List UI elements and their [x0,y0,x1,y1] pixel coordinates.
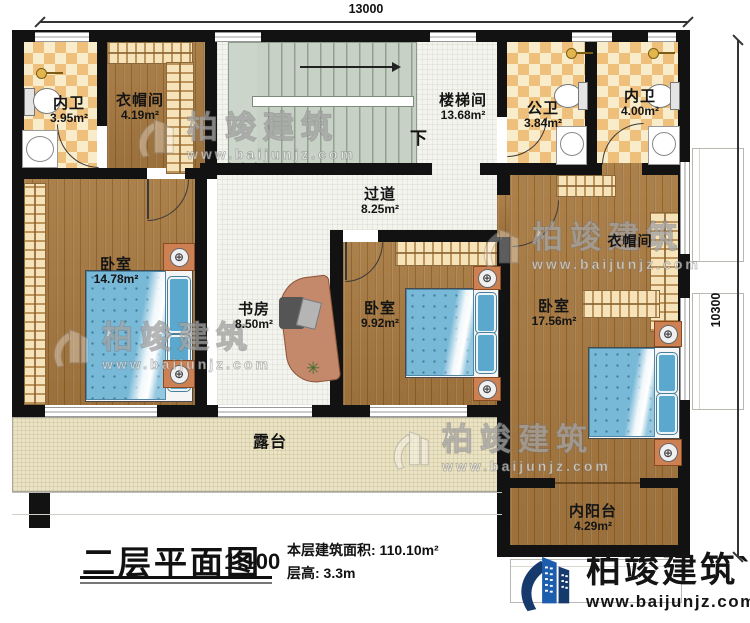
wall-segment [12,168,147,179]
room-label-stairwell: 楼梯间 13.68m² [417,92,509,123]
wall-segment [12,405,45,417]
window [680,298,690,400]
room-label-cloak-left: 衣帽间 4.19m² [100,92,180,123]
room-name: 楼梯间 [439,92,487,109]
room-name: 露台 [253,434,287,452]
room-area: 4.29m² [574,520,612,534]
bed-pillow [657,353,677,393]
room-area: 4.00m² [621,105,659,119]
logo-brand-name: 柏竣建筑` [586,553,750,588]
bed-pillow [168,277,190,333]
sink-icon [560,132,584,156]
nightstand-knob-icon: ⊕ [478,380,497,399]
closet-strip [556,175,616,197]
room-label-balcony: 内阳台 4.29m² [554,503,632,534]
window [35,32,89,42]
window [648,32,676,42]
room-name: 衣帽间 [116,92,164,109]
stair-direction-arrow [392,62,401,72]
wall-segment [312,405,370,417]
shower-valve-icon [566,48,577,59]
dimension-width-label: 13000 [330,2,402,16]
plan-scale: 1:100 [224,549,280,575]
wall-segment [510,478,555,488]
room-label-bedroom-right: 卧室 17.56m² [513,298,595,329]
room-name: 内阳台 [569,503,617,520]
sink-icon [652,132,676,156]
nightstand: ⊕ [654,439,682,466]
closet-strip [107,42,193,64]
stairs-down-label: 下 [410,124,427,149]
room-area: 9.92m² [361,317,399,331]
room-name: 内卫 [53,95,85,112]
nightstand: ⊕ [473,377,501,401]
wall-segment [200,163,432,175]
stair-direction-line [300,66,392,68]
window [680,162,690,254]
window [215,32,261,42]
plant-icon: ✳ [306,360,324,378]
dimension-line [737,40,739,557]
room-label-bath-public: 公卫 3.84m² [504,100,582,131]
bed-mattress [589,348,655,437]
room-label-bedroom-left: 卧室 14.78m² [76,256,156,287]
stair-handrail [252,96,414,107]
room-label-bath-master-right: 内卫 4.00m² [602,88,678,119]
dimension-line [40,21,688,23]
nightstand: ⊕ [654,321,682,347]
balcony-threshold [555,482,640,484]
nightstand: ⊕ [163,360,195,388]
window [430,32,476,42]
sink-icon [26,136,54,162]
logo-accent-mark: ` [738,551,750,590]
wardrobe-strip [24,183,46,405]
wall-segment [640,478,678,488]
shower-valve-icon [36,68,47,79]
dimension-height-label: 10300 [709,280,723,340]
logo-text: 柏竣建筑` www.baijunjz.com [586,553,750,612]
window [370,407,467,417]
wall-segment [12,30,24,417]
room-name: 卧室 [538,298,570,315]
shower-valve-icon [648,48,659,59]
brand-logo: 柏竣建筑` www.baijunjz.com [514,550,750,614]
nightstand: ⊕ [473,266,501,290]
logo-brand-chars: 柏竣建筑 [586,551,738,590]
bed-mattress [86,271,166,400]
room-name: 公卫 [527,100,559,117]
floor-area-text: 本层建筑面积: 110.10m² [287,540,439,560]
nightstand-knob-icon: ⊕ [659,325,678,344]
logo-website: www.baijunjz.com [586,592,750,612]
bed-pillow [657,394,677,434]
room-label-terrace: 露台 [230,434,310,452]
nightstand-knob-icon: ⊕ [170,248,189,267]
nightstand-knob-icon: ⊕ [478,269,497,288]
room-name: 过道 [364,186,396,203]
room-area: 17.56m² [532,315,577,329]
window [572,32,612,42]
room-area: 3.84m² [524,117,562,131]
room-area: 3.95m² [50,112,88,126]
sliding-door [218,407,312,417]
wall-segment [205,30,217,177]
eave-line [12,514,502,515]
room-name: 卧室 [100,256,132,273]
nightstand: ⊕ [163,243,195,271]
doorway-patch [497,195,510,237]
shower-valve-stem [45,72,63,74]
nightstand-knob-icon: ⊕ [170,365,189,384]
room-label-bedroom-mid: 卧室 9.92m² [340,300,420,331]
shower-valve-stem [575,52,593,54]
room-label-corridor: 过道 8.25m² [342,186,418,217]
floor-height-text: 层高: 3.3m [287,563,355,583]
floorplan-canvas: ⊕ ⊕ ⊕ ⊕ ⊕ ⊕ ✳ 内卫 3.95m² 衣帽间 4.19m² 楼梯间 1… [0,0,750,623]
shower-valve-stem [657,52,675,54]
door-leaf [345,242,347,280]
room-area: 4.19m² [121,109,159,123]
room-area: 14.78m² [94,273,139,287]
nightstand-knob-icon: ⊕ [659,443,678,462]
room-label-study: 书房 8.50m² [214,301,294,332]
wall-segment [497,175,510,195]
title-underline [80,582,272,584]
closet-strip [395,240,499,266]
room-label-cloak-right: 衣帽间 [592,233,668,249]
room-area: 13.68m² [441,109,486,123]
wall-segment [378,230,497,242]
window [45,407,157,417]
bed [588,347,680,439]
room-label-bath-master-left: 内卫 3.95m² [32,95,106,126]
title-underline [80,576,272,579]
bed-pillow [476,333,496,373]
eave-line [12,492,502,493]
room-area: 8.25m² [361,203,399,217]
room-name: 内卫 [624,88,656,105]
room-name: 卧室 [364,300,396,317]
bed-pillow [476,293,496,333]
chimney-block [29,492,50,528]
wall-segment [195,177,207,405]
room-name: 衣帽间 [608,233,653,249]
room-name: 书房 [238,301,270,318]
room-area: 8.50m² [235,318,273,332]
logo-building-icon [514,550,576,614]
terrace-floor [12,417,502,492]
wall-segment [157,405,218,417]
door-leaf [147,179,149,219]
